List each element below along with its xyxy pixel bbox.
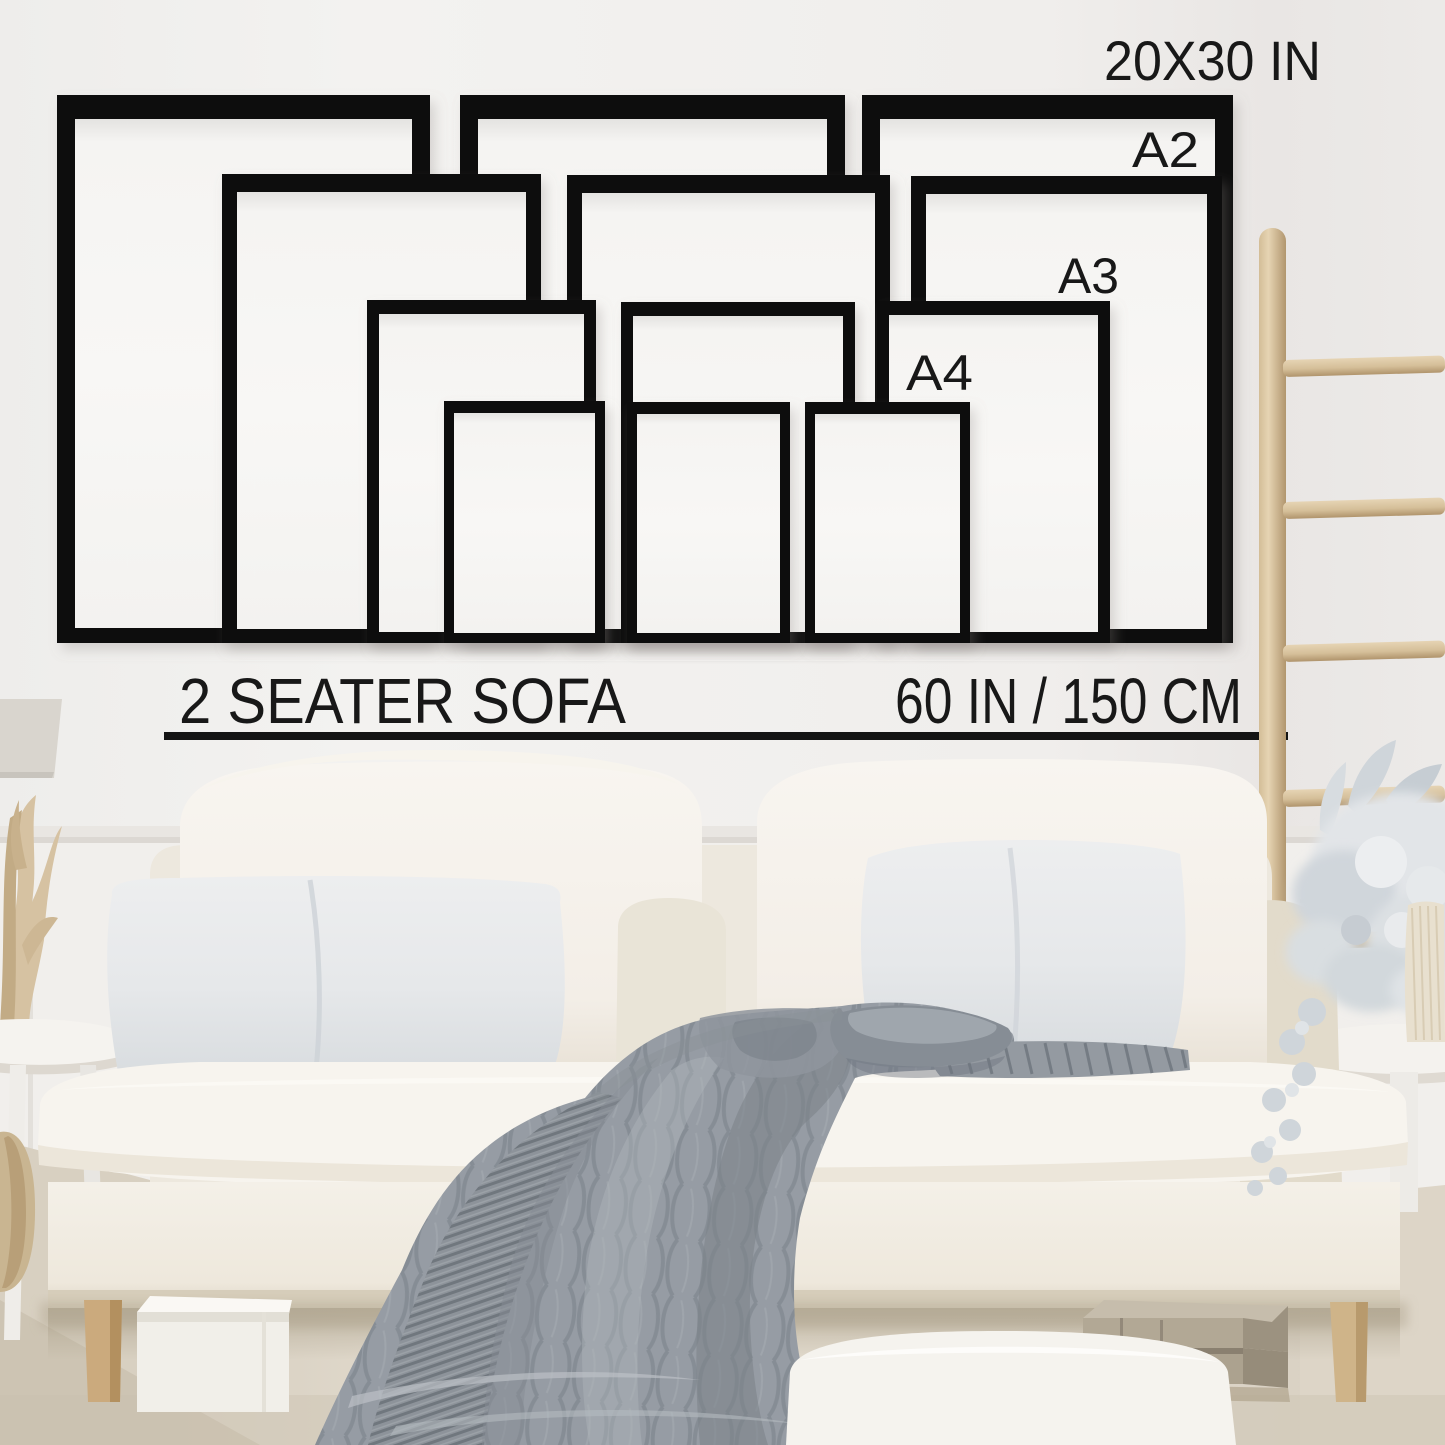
svg-text:60 IN / 150 CM: 60 IN / 150 CM (895, 665, 1242, 737)
svg-text:2 SEATER SOFA: 2 SEATER SOFA (179, 665, 626, 737)
svg-text:A2: A2 (1132, 122, 1199, 178)
svg-text:A3: A3 (1058, 248, 1119, 304)
svg-text:20X30 IN: 20X30 IN (1104, 29, 1321, 92)
svg-text:A4: A4 (906, 345, 973, 401)
